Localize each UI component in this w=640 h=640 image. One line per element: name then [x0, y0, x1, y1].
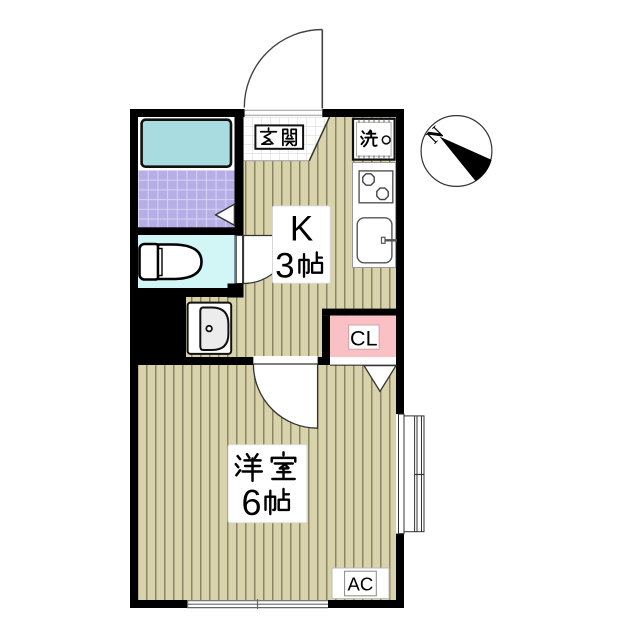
- svg-text:AC: AC: [348, 573, 374, 594]
- svg-text:CL: CL: [350, 327, 378, 351]
- svg-text:K: K: [290, 210, 313, 249]
- svg-text:3: 3: [275, 246, 294, 285]
- svg-text:6: 6: [241, 482, 261, 523]
